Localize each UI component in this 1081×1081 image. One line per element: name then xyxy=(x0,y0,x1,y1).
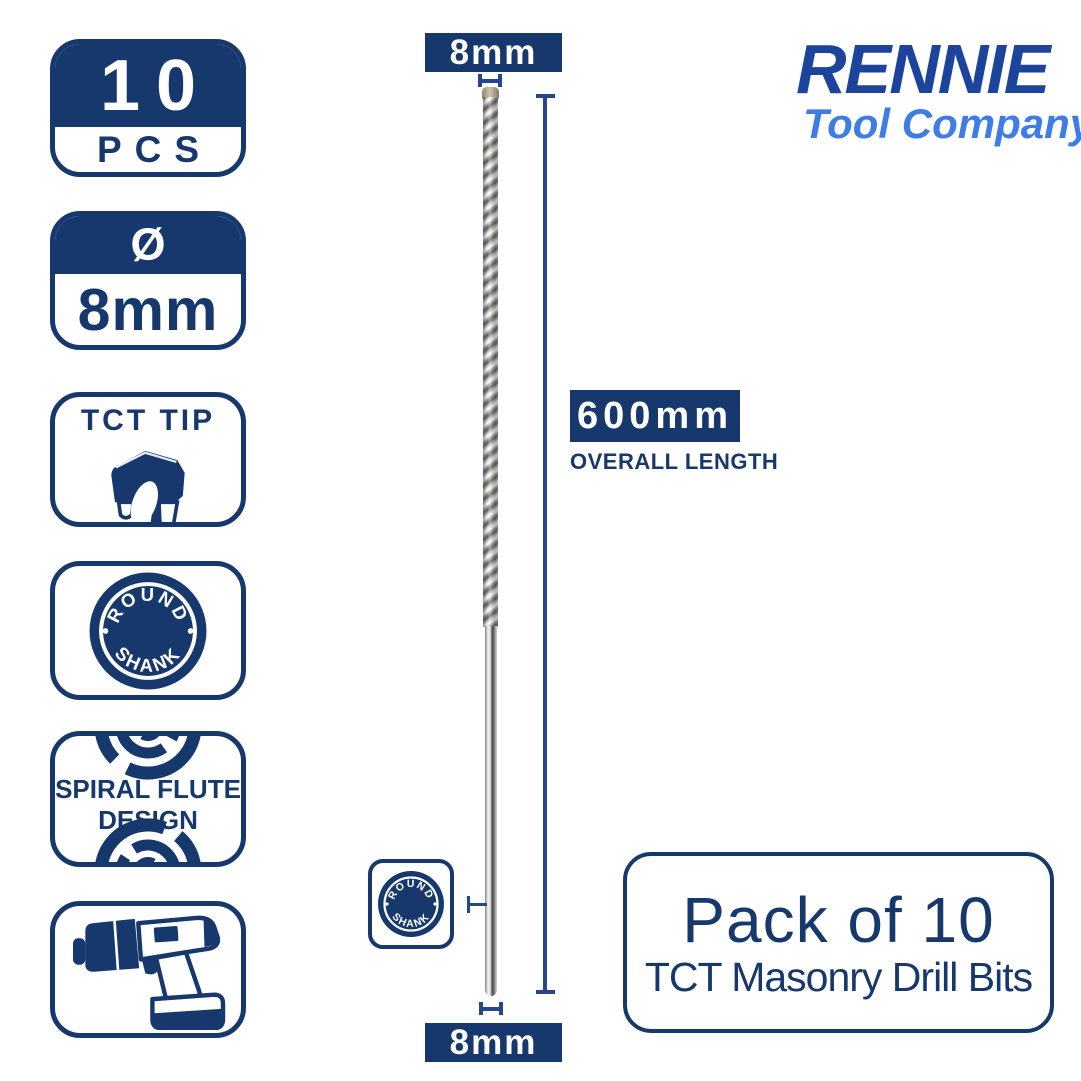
diameter-value: 8mm xyxy=(55,274,241,345)
badge-piece-count: 10 PCS xyxy=(50,39,246,177)
badge-spiral-flute: SPIRAL FLUTE DESIGN xyxy=(50,731,246,867)
spiral-flute-label: SPIRAL FLUTE DESIGN xyxy=(55,774,241,836)
badge-diameter: Ø 8mm xyxy=(50,211,246,350)
piece-count-value: 10 xyxy=(55,44,241,127)
product-title: Pack of 10 xyxy=(682,886,994,954)
separator-dot xyxy=(103,628,109,634)
tct-tip-label: TCT TIP xyxy=(55,404,241,438)
diameter-mark-bottom xyxy=(479,1002,503,1015)
shank-pointer-line xyxy=(469,903,487,906)
round-shank-emblem: ROUND SHANK xyxy=(86,569,210,693)
diameter-symbol-icon: Ø xyxy=(55,216,241,274)
separator-dot xyxy=(188,628,194,634)
brand-name: RENNIE xyxy=(796,36,1081,102)
power-drill-icon xyxy=(64,910,232,1030)
tip-diameter-label: 8mm xyxy=(425,33,562,72)
length-dimension-line xyxy=(543,95,547,993)
badge-power-drill xyxy=(50,901,246,1038)
brand-logo: RENNIE Tool Company xyxy=(796,36,1081,146)
brand-tagline: Tool Company xyxy=(803,102,1081,146)
dimension-cap-top xyxy=(536,94,555,98)
shank-pointer-bar xyxy=(467,896,470,913)
product-description-box: Pack of 10 TCT Masonry Drill Bits xyxy=(623,852,1054,1033)
drill-bit-flutes xyxy=(483,97,498,627)
drill-bit-shank xyxy=(485,626,497,996)
piece-count-unit: PCS xyxy=(55,127,241,172)
round-shank-emblem-small: ROUND SHANK xyxy=(376,869,446,939)
separator-dot xyxy=(385,902,388,905)
shank-diameter-label: 8mm xyxy=(425,1023,562,1062)
drill-tip-icon xyxy=(102,439,194,527)
diameter-mark-top xyxy=(478,74,502,87)
overall-length-caption: OVERALL LENGTH xyxy=(570,449,760,475)
badge-tct-tip: TCT TIP xyxy=(50,392,246,527)
spiral-flute-line1: SPIRAL FLUTE xyxy=(55,774,241,805)
dimension-cap-bottom xyxy=(536,990,555,994)
spiral-flute-line2: DESIGN xyxy=(55,805,241,836)
product-subtitle: TCT Masonry Drill Bits xyxy=(645,954,1032,1000)
separator-dot xyxy=(433,902,436,905)
mini-round-shank-badge: ROUND SHANK xyxy=(368,859,454,949)
badge-round-shank: ROUND SHANK xyxy=(50,561,246,700)
overall-length-label: 600mm xyxy=(570,390,740,442)
